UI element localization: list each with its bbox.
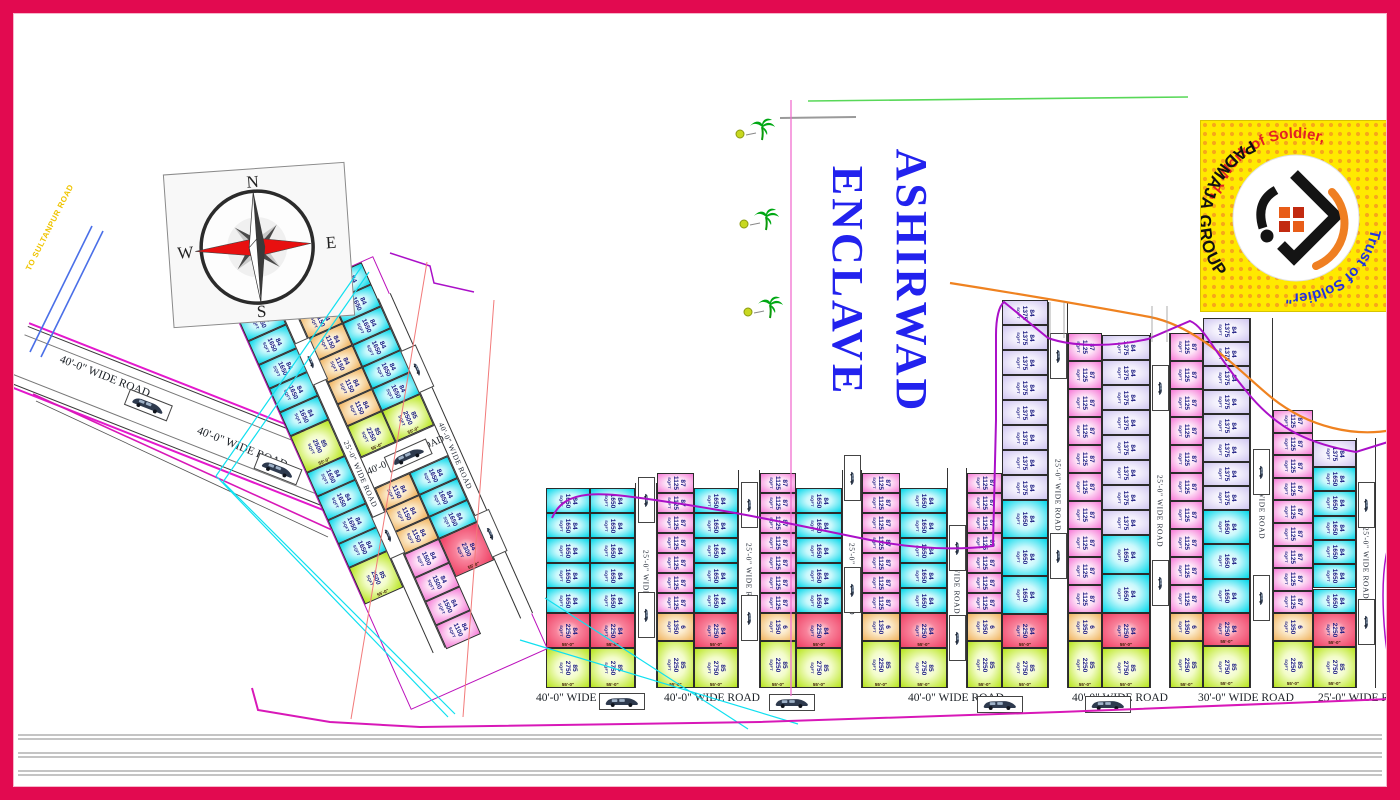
plot-cell: 852250SQFT55'-0" bbox=[967, 641, 1002, 688]
plot-label: 841650SQFT bbox=[707, 493, 725, 507]
plot-cell: 871125SQFT bbox=[1273, 500, 1313, 523]
plot-label: 871125SQFT bbox=[1284, 482, 1302, 496]
plot-label: 841375SQFT bbox=[1117, 515, 1135, 529]
plot-label: 871125SQFT bbox=[976, 556, 994, 570]
plot-cell: 852250SQFT55'-0" bbox=[760, 641, 796, 688]
plot-label: 841650SQFT bbox=[352, 537, 374, 557]
plot-cell: 61350SQFT bbox=[1170, 613, 1203, 641]
road-label: 25'-0" WIDE ROAD bbox=[1362, 527, 1371, 599]
plot-cell: 871125SQFT bbox=[1068, 501, 1102, 529]
plot-cell: 871125SQFT bbox=[657, 473, 694, 493]
plot-label: 871125SQFT bbox=[1178, 424, 1196, 438]
plot-cell: 841375SQFT bbox=[1203, 438, 1250, 462]
plot-cell: 841650SQFT bbox=[1313, 564, 1356, 588]
plot-label: 841650SQFT bbox=[1326, 496, 1344, 510]
site-plan-canvas: N E S W TO SULTANPUR ROAD 40'-0" WIDE RO… bbox=[0, 0, 1400, 800]
plot-cell: 61350SQFT bbox=[967, 613, 1002, 641]
plot-label: 841100SQFT bbox=[447, 620, 469, 640]
plot-label: 841650SQFT bbox=[1326, 545, 1344, 559]
car-icon bbox=[741, 595, 758, 641]
plot-label: 841650SQFT bbox=[915, 543, 933, 557]
plot-cell: 61350SQFT bbox=[1068, 613, 1102, 641]
plot-cell: 841375SQFT bbox=[1102, 335, 1150, 360]
plot-label: 871125SQFT bbox=[1076, 368, 1094, 382]
plot-label: 841650SQFT bbox=[604, 593, 622, 607]
plot-cell: 841650SQFT bbox=[1102, 535, 1150, 574]
plot-cluster: 841650SQFT841650SQFT841650SQFT841650SQFT… bbox=[236, 256, 548, 710]
plot-label: 841650SQFT bbox=[559, 593, 577, 607]
plot-label: 841375SQFT bbox=[1117, 465, 1135, 479]
plot-label: 841375SQFT bbox=[1016, 430, 1034, 444]
plot-label: 842300SQFT bbox=[455, 539, 477, 559]
plot-cell: 841650SQFT bbox=[1102, 574, 1150, 613]
plot-cell: 871125SQFT bbox=[657, 573, 694, 593]
plot-label: 852500SQFT bbox=[365, 567, 387, 587]
plot-label: 841650SQFT bbox=[432, 487, 454, 507]
plot-cell: 61350SQFT bbox=[1273, 613, 1313, 641]
plot-label: 841650SQFT bbox=[707, 518, 725, 532]
plot-label: 61350SQFT bbox=[667, 620, 685, 634]
plot-cell: 841650SQFT bbox=[590, 513, 635, 538]
plot-cell: 841650SQFT bbox=[546, 563, 590, 588]
plot-label: 841650SQFT bbox=[1326, 569, 1344, 583]
plot-label: 841375SQFT bbox=[1218, 491, 1236, 505]
plot-label: 852750SQFT bbox=[915, 661, 933, 675]
plot-cell: 842250SQFT55'-0" bbox=[1203, 613, 1250, 646]
plot-cell: 841650SQFT bbox=[796, 488, 842, 513]
car-icon bbox=[741, 482, 758, 528]
plot-cell: 842250SQFT55'-0" bbox=[546, 613, 590, 648]
plot-label: 841375SQFT bbox=[1117, 340, 1135, 354]
plot-label: 871125SQFT bbox=[872, 596, 890, 610]
compass-graphic: N E S W bbox=[164, 163, 354, 327]
plot-cell: 841650SQFT bbox=[900, 513, 947, 538]
road-label: 30'-0" WIDE ROAD bbox=[1198, 692, 1294, 704]
plot-label: 871125SQFT bbox=[872, 516, 890, 530]
plot-label: 842250SQFT bbox=[915, 623, 933, 637]
car-icon bbox=[638, 592, 655, 638]
plot-cell: 871125SQFT bbox=[1068, 557, 1102, 585]
plot-label: 871125SQFT bbox=[1076, 396, 1094, 410]
plot-cell: 841650SQFT bbox=[1203, 510, 1250, 544]
road-label: 25'-0" WIDE ROAD bbox=[1054, 459, 1063, 531]
plot-label: 842250SQFT bbox=[1218, 622, 1236, 636]
plot-label: 841650SQFT bbox=[915, 493, 933, 507]
plot-label: 841650SQFT bbox=[810, 518, 828, 532]
plot-label: 841375SQFT bbox=[1218, 347, 1236, 361]
plot-label: 841150SQFT bbox=[349, 398, 371, 418]
plot-cell: 841650SQFT bbox=[796, 538, 842, 563]
plot-cell: 842250SQFT55'-0" bbox=[694, 613, 738, 648]
plot-label: 61350SQFT bbox=[976, 620, 994, 634]
car-icon bbox=[1050, 533, 1067, 579]
plot-label: 871125SQFT bbox=[1284, 505, 1302, 519]
plot-cell: 841650SQFT bbox=[900, 488, 947, 513]
plot-cell: 852750SQFT55'-0" bbox=[590, 648, 635, 688]
plot-label: 871125SQFT bbox=[769, 516, 787, 530]
plot-label: 841375SQFT bbox=[1016, 455, 1034, 469]
plot-dimension-label: 55'-0" bbox=[1204, 682, 1249, 687]
car-icon bbox=[1050, 333, 1067, 379]
plot-dimension-label: 55'-0" bbox=[1274, 682, 1312, 687]
plot-dimension-label: 55'-0" bbox=[695, 643, 737, 648]
plot-cell: 852250SQFT55'-0" bbox=[657, 641, 694, 688]
plot-label: 871125SQFT bbox=[1076, 480, 1094, 494]
plot-label: 841650SQFT bbox=[559, 493, 577, 507]
plot-cell: 871125SQFT bbox=[967, 513, 1002, 533]
plot-label: 841650SQFT bbox=[707, 568, 725, 582]
plot-label: 871125SQFT bbox=[1178, 592, 1196, 606]
plot-cell: 841650SQFT bbox=[1313, 467, 1356, 491]
plot-cell: 842250SQFT55'-0" bbox=[590, 613, 635, 648]
car-icon bbox=[638, 477, 655, 523]
plot-label: 841650SQFT bbox=[356, 315, 378, 335]
plot-cell: 852250SQFT55'-0" bbox=[1273, 641, 1313, 688]
plot-label: 871125SQFT bbox=[769, 576, 787, 590]
plot-cell: 841375SQFT bbox=[1203, 462, 1250, 486]
plot-label: 871125SQFT bbox=[1284, 595, 1302, 609]
plot-label: 841150SQFT bbox=[386, 482, 408, 502]
plot-cell: 852250SQFT55'-0" bbox=[1170, 641, 1203, 688]
plot-cell: 841650SQFT bbox=[546, 538, 590, 563]
plot-cell: 871125SQFT bbox=[1170, 585, 1203, 613]
plot-cell: 841375SQFT bbox=[1203, 318, 1250, 342]
plot-cell: 871125SQFT bbox=[657, 493, 694, 513]
plot-cell: 871125SQFT bbox=[967, 553, 1002, 573]
plot-label: 841650SQFT bbox=[320, 466, 342, 486]
plot-cell: 841650SQFT bbox=[796, 513, 842, 538]
plot-dimension-label: 55'-0" bbox=[1003, 683, 1047, 688]
plot-cell: 871125SQFT bbox=[1170, 389, 1203, 417]
plot-label: 841650SQFT bbox=[810, 543, 828, 557]
road-label: 40'-0" WIDE ROAD bbox=[664, 692, 760, 704]
plot-cell: 841375SQFT bbox=[1102, 510, 1150, 535]
plot-label: 841375SQFT bbox=[1218, 371, 1236, 385]
plot-label: 841650SQFT bbox=[604, 568, 622, 582]
plot-label: 871125SQFT bbox=[976, 536, 994, 550]
plot-cell: 841375SQFT bbox=[1203, 486, 1250, 510]
plot-dimension-label: 55'-0" bbox=[1171, 683, 1202, 688]
compass-w-label: W bbox=[177, 243, 195, 263]
plot-cell: 841650SQFT bbox=[1313, 589, 1356, 613]
plot-cell: 841650SQFT bbox=[900, 563, 947, 588]
car-icon bbox=[844, 567, 861, 613]
car-icon bbox=[1358, 599, 1375, 645]
plot-label: 841375SQFT bbox=[1117, 490, 1135, 504]
plot-cell: 841375SQFT bbox=[1002, 375, 1048, 400]
plot-cell: 842250SQFT55'-0" bbox=[900, 613, 947, 648]
plot-cell: 841375SQFT bbox=[1102, 485, 1150, 510]
plot-label: 841650SQFT bbox=[559, 543, 577, 557]
plot-cell: 871125SQFT bbox=[967, 573, 1002, 593]
plot-label: 841375SQFT bbox=[1218, 323, 1236, 337]
plot-label: 841375SQFT bbox=[1218, 467, 1236, 481]
plot-cell: 852750SQFT55'-0" bbox=[796, 648, 842, 688]
plot-label: 871125SQFT bbox=[667, 556, 685, 570]
plot-label: 871125SQFT bbox=[976, 476, 994, 490]
plot-label: 841375SQFT bbox=[1117, 415, 1135, 429]
plot-cell: 871125SQFT bbox=[967, 493, 1002, 513]
plot-dimension-label: 55'-0" bbox=[797, 683, 841, 688]
plot-cell: 841650SQFT bbox=[694, 563, 738, 588]
road-vertical: 25'-0" WIDE ROAD bbox=[1356, 438, 1376, 688]
project-title-line2: ENCLAVE bbox=[815, 131, 879, 431]
car-icon bbox=[1358, 482, 1375, 528]
plot-layout: 841650SQFT841650SQFT841650SQFT841650SQFT… bbox=[0, 0, 1400, 800]
plot-dimension-label: 55'-0" bbox=[797, 643, 841, 648]
plot-cell: 871125SQFT bbox=[1068, 473, 1102, 501]
plot-label: 852750SQFT bbox=[1016, 661, 1034, 675]
car-icon bbox=[949, 525, 966, 571]
plot-cell: 871125SQFT bbox=[1068, 361, 1102, 389]
plot-label: 841375SQFT bbox=[1016, 480, 1034, 494]
project-title: ASHIRWAD ENCLAVE bbox=[790, 135, 968, 427]
car-icon bbox=[1152, 365, 1169, 411]
plot-label: 871125SQFT bbox=[1284, 437, 1302, 451]
plot-label: 841500SQFT bbox=[416, 548, 438, 568]
plot-cell: 871125SQFT bbox=[1068, 389, 1102, 417]
plot-label: 871125SQFT bbox=[976, 496, 994, 510]
plot-cell: 841375SQFT bbox=[1203, 414, 1250, 438]
plot-label: 871125SQFT bbox=[1178, 508, 1196, 522]
plot-label: 842250SQFT bbox=[810, 623, 828, 637]
plot-dimension-label: 55'-0" bbox=[591, 683, 634, 688]
developer-logo: "A Work of Soldier, Trust of Soldier" PA… bbox=[1200, 120, 1392, 312]
plot-label: 871125SQFT bbox=[1076, 536, 1094, 550]
plot-cell: 852750SQFT55'-0" bbox=[546, 648, 590, 688]
plot-cell: 841375SQFT bbox=[1102, 360, 1150, 385]
plot-cell: 871125SQFT bbox=[760, 473, 796, 493]
plot-cell: 871125SQFT bbox=[657, 553, 694, 573]
plot-cell: 841650SQFT bbox=[694, 538, 738, 563]
project-title-line1: ASHIRWAD bbox=[879, 131, 943, 431]
plot-cell: 841650SQFT bbox=[900, 538, 947, 563]
plot-cell: 871125SQFT bbox=[1273, 568, 1313, 591]
plot-label: 841150SQFT bbox=[319, 332, 341, 352]
plot-cell: 841375SQFT bbox=[1102, 435, 1150, 460]
plot-cell: 871125SQFT bbox=[1068, 333, 1102, 361]
plot-label: 841650SQFT bbox=[810, 593, 828, 607]
plot-label: 841650SQFT bbox=[915, 593, 933, 607]
plot-label: 852500SQFT bbox=[397, 408, 419, 428]
plot-cell: 841375SQFT bbox=[1313, 440, 1356, 467]
plot-label: 852750SQFT bbox=[707, 661, 725, 675]
plot-label: 61350SQFT bbox=[1178, 620, 1196, 634]
compass-n-label: N bbox=[246, 172, 260, 192]
plot-cell: 841650SQFT bbox=[1002, 576, 1048, 614]
car-icon bbox=[949, 615, 966, 661]
plot-label: 871125SQFT bbox=[1076, 424, 1094, 438]
plot-cell: 852750SQFT55'-0" bbox=[1203, 646, 1250, 688]
plot-label: 852750SQFT bbox=[1117, 661, 1135, 675]
plot-label: 871125SQFT bbox=[1284, 414, 1302, 428]
plot-dimension-label: 55'-0" bbox=[1103, 683, 1149, 688]
plot-cell: 871125SQFT bbox=[1170, 529, 1203, 557]
plot-cell: 841650SQFT bbox=[546, 588, 590, 613]
plot-label: 841500SQFT bbox=[426, 572, 448, 592]
plot-cell: 871125SQFT bbox=[1273, 410, 1313, 433]
plot-cell: 841650SQFT bbox=[590, 488, 635, 513]
plot-cell: 841650SQFT bbox=[590, 563, 635, 588]
plot-label: 841375SQFT bbox=[1218, 443, 1236, 457]
car-icon bbox=[1085, 696, 1131, 713]
plot-label: 852750SQFT bbox=[810, 661, 828, 675]
plot-label: 852750SQFT bbox=[604, 661, 622, 675]
plot-label: 842250SQFT bbox=[707, 623, 725, 637]
plot-label: 841150SQFT bbox=[406, 526, 428, 546]
plot-label: 841650SQFT bbox=[1016, 512, 1034, 526]
plot-cell: 871125SQFT bbox=[1068, 445, 1102, 473]
plot-label: 871125SQFT bbox=[1178, 396, 1196, 410]
plot-cell: 841375SQFT bbox=[1002, 450, 1048, 475]
plot-cell: 852750SQFT55'-0" bbox=[1313, 647, 1356, 688]
plot-label: 871125SQFT bbox=[872, 556, 890, 570]
plot-dimension-label: 55'-0" bbox=[1314, 682, 1355, 687]
plot-cell: 871125SQFT bbox=[1273, 523, 1313, 546]
plot-label: 841375SQFT bbox=[1326, 446, 1344, 460]
plot-label: 871125SQFT bbox=[667, 576, 685, 590]
plot-label: 841650SQFT bbox=[442, 509, 464, 529]
plot-cell: 871125SQFT bbox=[1170, 361, 1203, 389]
car-icon bbox=[599, 693, 645, 710]
plot-cell: 842250SQFT55'-0" bbox=[796, 613, 842, 648]
plot-label: 841650SQFT bbox=[1117, 586, 1135, 600]
plot-label: 61350SQFT bbox=[1284, 620, 1302, 634]
plot-cell: 871125SQFT bbox=[760, 573, 796, 593]
plot-label: 841375SQFT bbox=[1016, 355, 1034, 369]
plot-dimension-label: 55'-0" bbox=[658, 683, 693, 688]
plot-cell: 871125SQFT bbox=[1170, 445, 1203, 473]
plot-label: 841650SQFT bbox=[272, 358, 294, 378]
plot-label: 871125SQFT bbox=[1076, 508, 1094, 522]
plot-label: 852250SQFT bbox=[872, 657, 890, 671]
plot-cell: 841650SQFT bbox=[1203, 579, 1250, 613]
compass-rose: N E S W bbox=[163, 162, 355, 328]
plot-label: 852250SQFT bbox=[1178, 657, 1196, 671]
plot-cell: 841650SQFT bbox=[1313, 516, 1356, 540]
plot-cell: 871125SQFT bbox=[760, 533, 796, 553]
palm-tree-icon bbox=[740, 296, 786, 330]
plot-cell: 852750SQFT55'-0" bbox=[1002, 648, 1048, 688]
plot-label: 871125SQFT bbox=[872, 576, 890, 590]
car-icon bbox=[769, 694, 815, 711]
plot-label: 841375SQFT bbox=[1117, 390, 1135, 404]
plot-label: 841650SQFT bbox=[423, 465, 445, 485]
plot-label: 871125SQFT bbox=[667, 516, 685, 530]
plot-cell: 871125SQFT bbox=[760, 553, 796, 573]
plot-label: 61350SQFT bbox=[872, 620, 890, 634]
plot-cell: 871125SQFT bbox=[657, 593, 694, 613]
plot-cell: 871125SQFT bbox=[760, 593, 796, 613]
plot-label: 61350SQFT bbox=[1076, 620, 1094, 634]
plot-cell: 871125SQFT bbox=[1170, 417, 1203, 445]
plot-label: 841650SQFT bbox=[1326, 593, 1344, 607]
plot-label: 841375SQFT bbox=[1218, 419, 1236, 433]
plot-dimension-label: 55'-0" bbox=[1103, 643, 1149, 648]
plot-cell: 871125SQFT bbox=[1170, 333, 1203, 361]
plot-label: 841375SQFT bbox=[1016, 330, 1034, 344]
car-icon bbox=[844, 455, 861, 501]
plot-label: 871125SQFT bbox=[976, 516, 994, 530]
plot-cell: 841650SQFT bbox=[900, 588, 947, 613]
plot-cell: 871125SQFT bbox=[1170, 473, 1203, 501]
plot-cell: 871125SQFT bbox=[862, 573, 900, 593]
plot-cell: 841650SQFT bbox=[694, 488, 738, 513]
plot-label: 871125SQFT bbox=[667, 536, 685, 550]
plot-cell: 841650SQFT bbox=[1002, 500, 1048, 538]
plot-cell: 841375SQFT bbox=[1102, 460, 1150, 485]
plot-cell: 841650SQFT bbox=[546, 513, 590, 538]
plot-cell: 841375SQFT bbox=[1002, 475, 1048, 500]
plot-label: 852250SQFT bbox=[769, 657, 787, 671]
plot-label: 61350SQFT bbox=[769, 620, 787, 634]
plot-cell: 841650SQFT bbox=[694, 588, 738, 613]
plot-label: 841650SQFT bbox=[707, 543, 725, 557]
plot-label: 841650SQFT bbox=[1016, 550, 1034, 564]
compass-e-label: E bbox=[325, 233, 337, 253]
plot-label: 841650SQFT bbox=[1117, 547, 1135, 561]
plot-dimension-label: 55'-0" bbox=[547, 643, 589, 648]
plot-cell: 841650SQFT bbox=[796, 588, 842, 613]
palm-tree-icon bbox=[736, 208, 782, 242]
car-icon bbox=[1253, 575, 1270, 621]
plot-cell: 871125SQFT bbox=[657, 533, 694, 553]
road-label: 25'-0" WIDE ROAD bbox=[1156, 474, 1165, 546]
plot-label: 841375SQFT bbox=[1016, 305, 1034, 319]
plot-cell: 841650SQFT bbox=[1002, 538, 1048, 576]
plot-label: 841650SQFT bbox=[261, 334, 283, 354]
plot-cell: 841375SQFT bbox=[1102, 410, 1150, 435]
plot-cell: 841375SQFT bbox=[1203, 366, 1250, 390]
plot-dimension-label: 55'-0" bbox=[761, 683, 795, 688]
plot-label: 841650SQFT bbox=[707, 593, 725, 607]
plot-label: 871125SQFT bbox=[1076, 564, 1094, 578]
plot-label: 871125SQFT bbox=[1178, 340, 1196, 354]
plot-label: 841650SQFT bbox=[375, 359, 397, 379]
plot-cell: 871125SQFT bbox=[1170, 557, 1203, 585]
plot-cell: 841650SQFT bbox=[1313, 540, 1356, 564]
plot-label: 871125SQFT bbox=[1178, 368, 1196, 382]
plot-cell: 841375SQFT bbox=[1102, 385, 1150, 410]
plot-cell: 871125SQFT bbox=[862, 593, 900, 613]
plot-label: 842250SQFT bbox=[1326, 623, 1344, 637]
plot-label: 841650SQFT bbox=[604, 493, 622, 507]
plot-label: 871125SQFT bbox=[769, 596, 787, 610]
plot-label: 841375SQFT bbox=[1016, 405, 1034, 419]
plot-cell: 852750SQFT55'-0" bbox=[1102, 648, 1150, 688]
plot-cell: 871125SQFT bbox=[1068, 529, 1102, 557]
road-label: 25'-0" WIDE ROAD bbox=[1318, 692, 1400, 704]
plot-label: 871125SQFT bbox=[769, 476, 787, 490]
plot-label: 841650SQFT bbox=[604, 543, 622, 557]
plot-label: 871125SQFT bbox=[872, 536, 890, 550]
plot-label: 871125SQFT bbox=[769, 536, 787, 550]
compass-s-label: S bbox=[256, 302, 267, 322]
plot-cell: 61350SQFT bbox=[862, 613, 900, 641]
plot-label: 852250SQFT bbox=[360, 424, 382, 444]
plot-cell: 841375SQFT bbox=[1002, 300, 1048, 325]
plot-label: 871125SQFT bbox=[872, 496, 890, 510]
plot-label: 871125SQFT bbox=[769, 496, 787, 510]
plot-dimension-label: 55'-0" bbox=[1069, 683, 1101, 688]
plot-label: 841650SQFT bbox=[1218, 520, 1236, 534]
car-icon bbox=[1152, 560, 1169, 606]
plot-cell: 871125SQFT bbox=[967, 593, 1002, 613]
plot-dimension-label: 55'-0" bbox=[1204, 640, 1249, 645]
plot-label: 871125SQFT bbox=[1178, 480, 1196, 494]
plot-dimension-label: 55'-0" bbox=[1003, 643, 1047, 648]
plot-dimension-label: 55'-0" bbox=[695, 683, 737, 688]
